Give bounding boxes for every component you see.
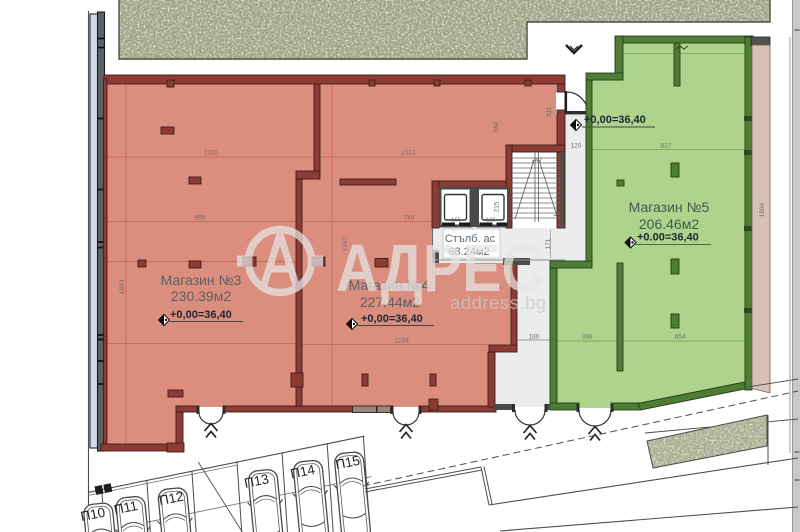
svg-text:740: 740: [404, 215, 415, 222]
svg-text:Магазин №5: Магазин №5: [629, 199, 710, 215]
svg-text:+0,00=36,40: +0,00=36,40: [170, 309, 232, 321]
svg-text:+0.00=36,40: +0.00=36,40: [637, 232, 699, 244]
svg-text:215: 215: [494, 201, 501, 212]
svg-text:1893: 1893: [119, 279, 126, 294]
svg-text:165: 165: [451, 218, 461, 224]
svg-text:Магазин №3: Магазин №3: [161, 272, 242, 288]
svg-text:120: 120: [571, 143, 582, 150]
svg-text:+0,00=36,40: +0,00=36,40: [361, 313, 423, 325]
svg-text:230.39м2: 230.39м2: [171, 288, 231, 304]
svg-text:247: 247: [532, 157, 543, 164]
svg-text:180: 180: [529, 334, 540, 341]
svg-text:654: 654: [675, 334, 686, 341]
svg-text:1100: 1100: [204, 150, 218, 157]
svg-text:171: 171: [545, 238, 552, 249]
svg-text:995: 995: [195, 215, 206, 222]
svg-text:1804: 1804: [759, 202, 766, 217]
svg-text:336: 336: [582, 334, 593, 341]
svg-text:address.bg: address.bg: [450, 292, 547, 313]
svg-text:165: 165: [486, 218, 496, 224]
svg-text:311: 311: [546, 106, 553, 117]
svg-text:560: 560: [493, 121, 500, 132]
svg-text:1104: 1104: [395, 338, 409, 345]
svg-text:1013: 1013: [401, 150, 416, 157]
svg-text:817: 817: [661, 143, 672, 150]
svg-text:+0,00=36,40: +0,00=36,40: [584, 114, 646, 126]
svg-text:206.46м2: 206.46м2: [639, 216, 699, 232]
